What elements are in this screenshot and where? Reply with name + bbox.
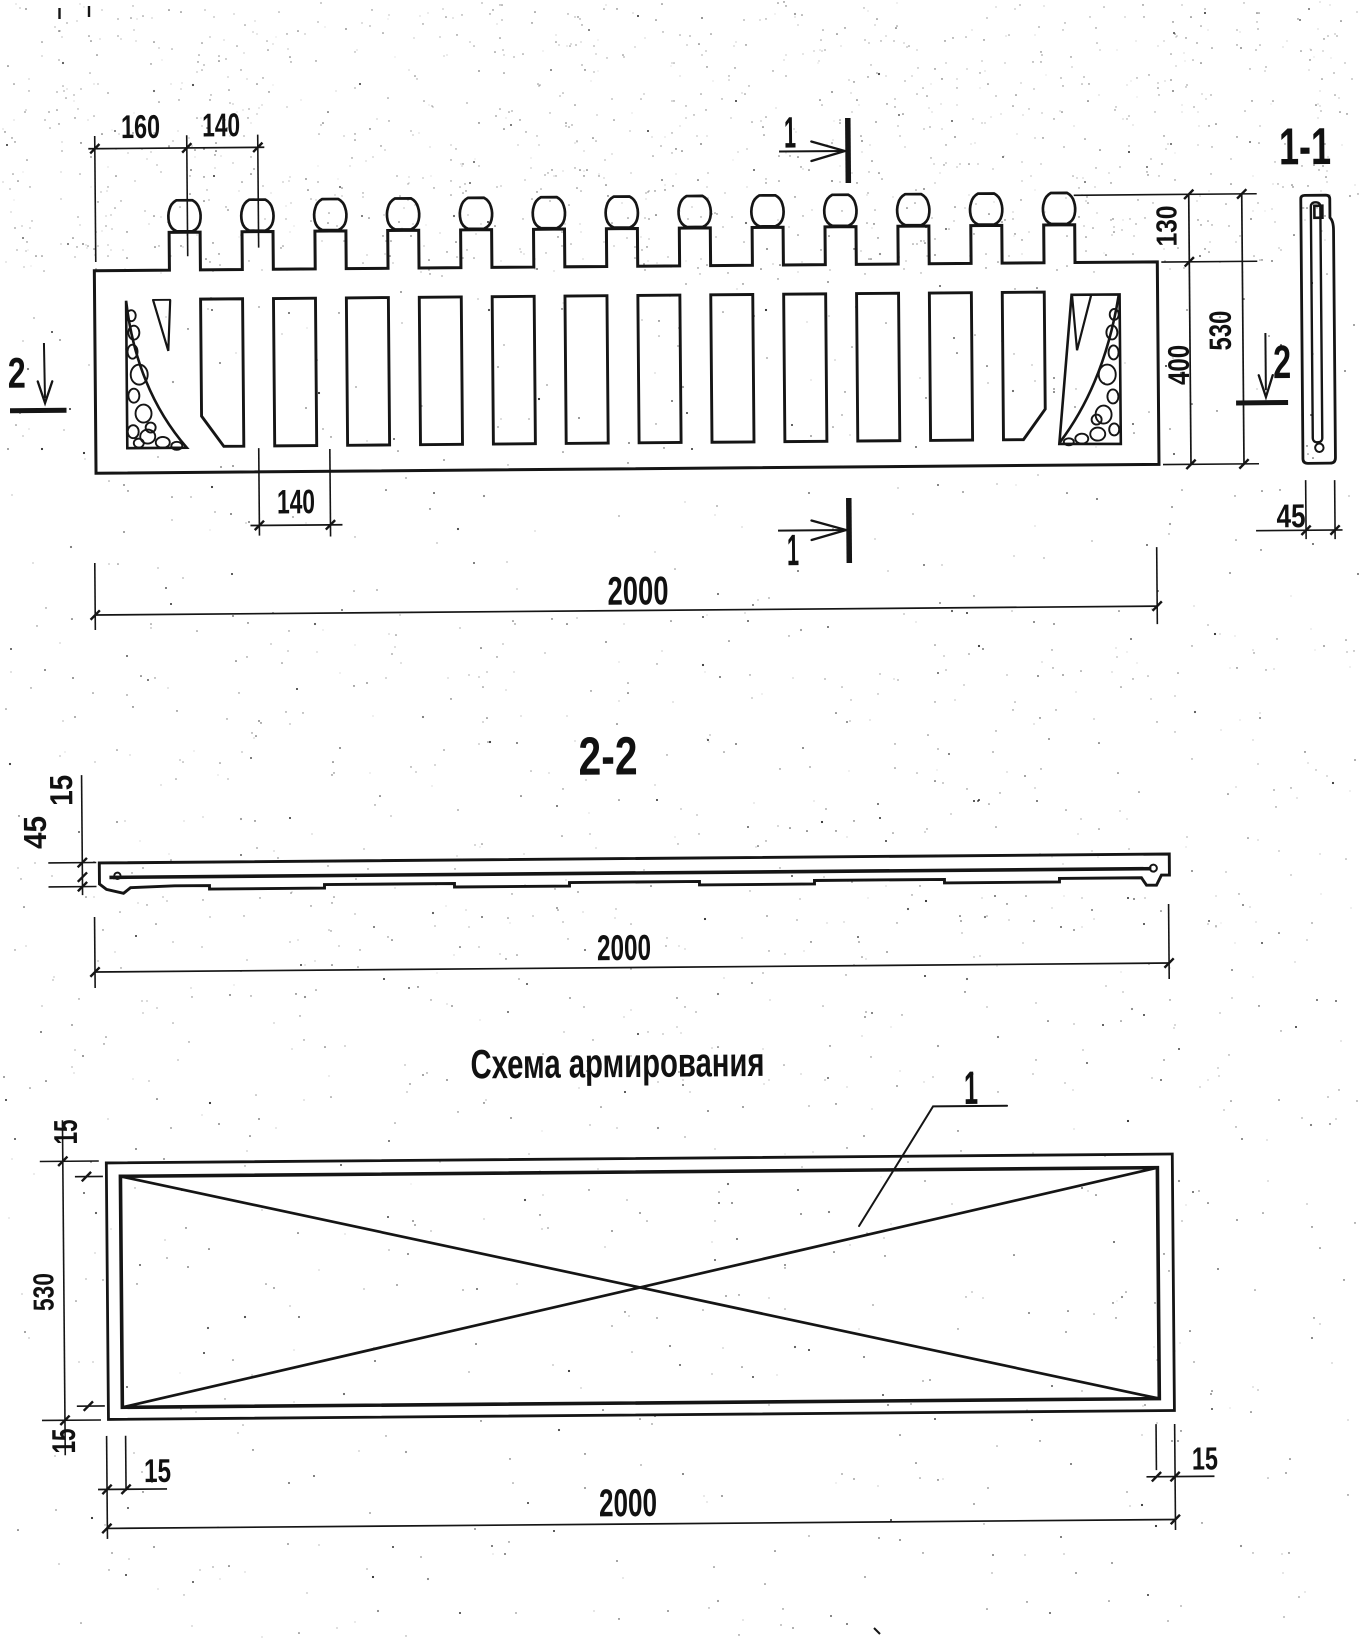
svg-text:2000: 2000 <box>607 569 668 614</box>
svg-text:2000: 2000 <box>597 927 651 968</box>
svg-text:530: 530 <box>28 1273 60 1311</box>
svg-text:2: 2 <box>1273 335 1291 388</box>
svg-text:2000: 2000 <box>599 1482 657 1525</box>
svg-text:2: 2 <box>8 350 26 398</box>
svg-text:160: 160 <box>121 108 160 145</box>
svg-text:15: 15 <box>45 1428 82 1453</box>
svg-text:400: 400 <box>1163 345 1196 385</box>
svg-text:530: 530 <box>1203 310 1238 350</box>
svg-text:1: 1 <box>784 109 796 158</box>
svg-text:45: 45 <box>1276 497 1305 534</box>
svg-text:1-1: 1-1 <box>1279 118 1331 176</box>
svg-text:15: 15 <box>43 775 79 806</box>
svg-text:Схема армирования: Схема армирования <box>470 1039 764 1087</box>
svg-text:15: 15 <box>144 1452 171 1489</box>
svg-text:45: 45 <box>17 816 53 849</box>
svg-text:2-2: 2-2 <box>578 726 638 786</box>
svg-text:15: 15 <box>1192 1440 1218 1476</box>
svg-text:140: 140 <box>202 106 240 143</box>
svg-text:15: 15 <box>47 1119 84 1144</box>
svg-text:1: 1 <box>787 526 799 575</box>
svg-text:130: 130 <box>1151 205 1183 246</box>
svg-text:140: 140 <box>277 483 315 521</box>
